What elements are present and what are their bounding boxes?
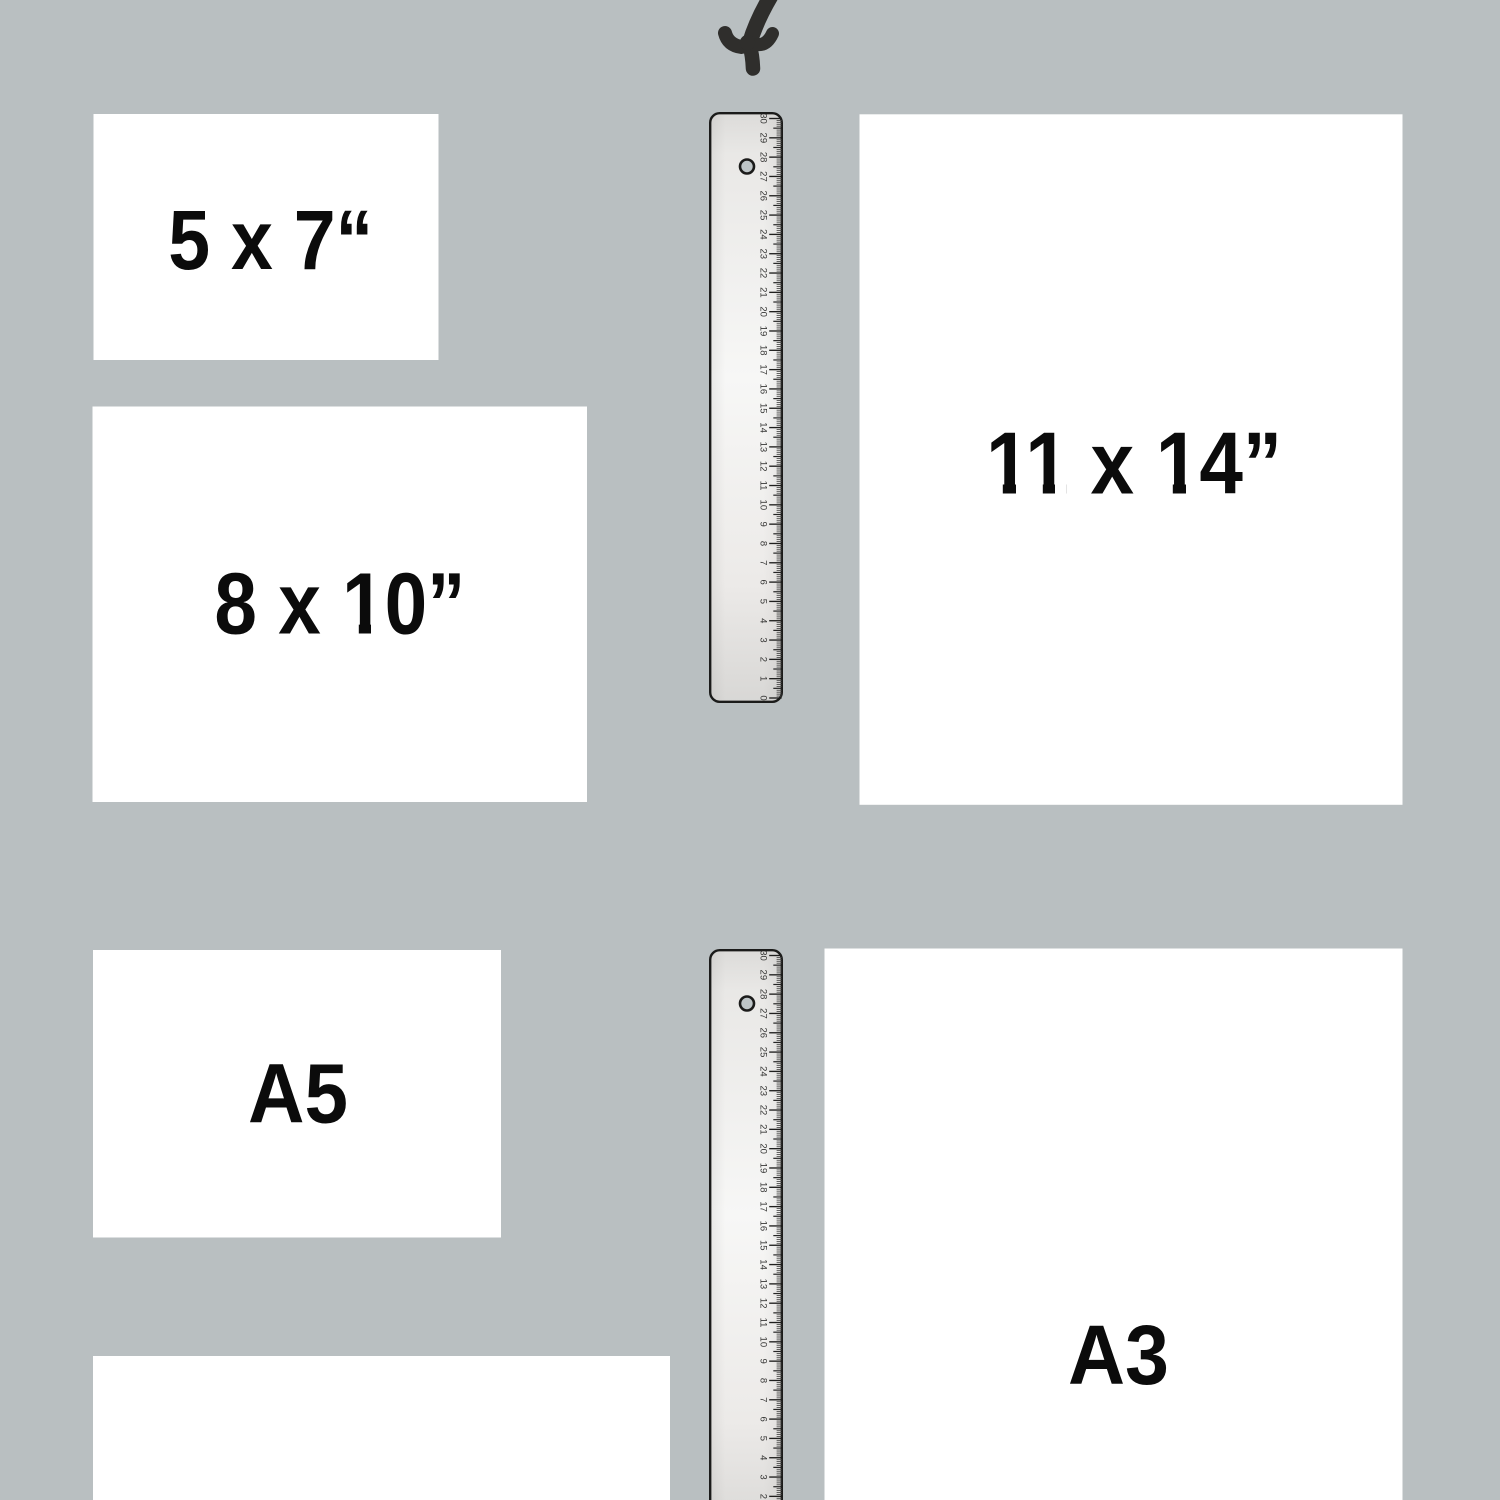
- svg-text:5 x 7“: 5 x 7“: [168, 193, 373, 287]
- svg-text:11 x 14”: 11 x 14”: [986, 414, 1282, 513]
- svg-text:8 x 10”: 8 x 10”: [214, 556, 465, 653]
- svg-text:A3: A3: [1068, 1308, 1169, 1402]
- svg-text:A5: A5: [248, 1047, 348, 1141]
